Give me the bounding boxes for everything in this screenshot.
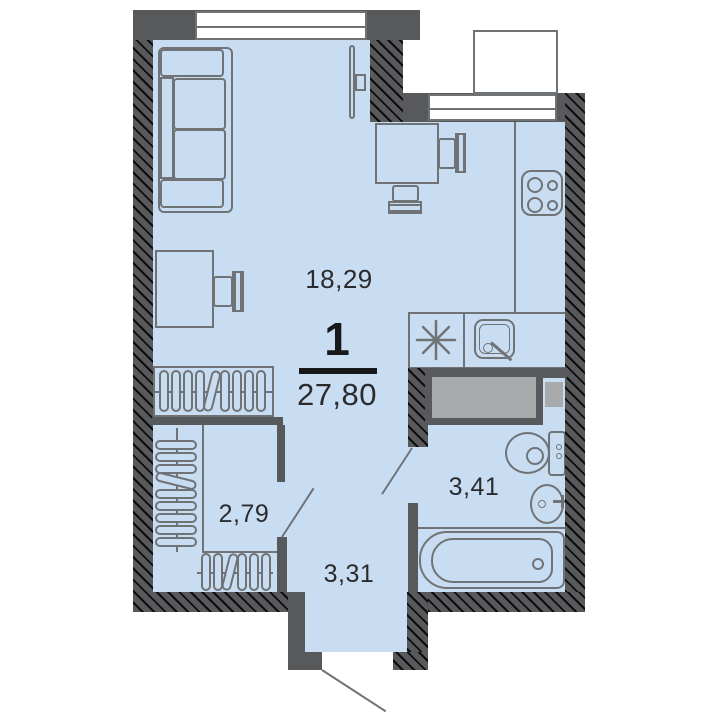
toilet-button xyxy=(556,444,562,450)
dining-chair-back xyxy=(455,133,466,173)
hanger-icon xyxy=(256,370,266,412)
hanger-icon xyxy=(171,370,181,412)
closet-line-vertical xyxy=(202,425,204,552)
wall-left xyxy=(133,10,153,612)
sofa-armrest-top xyxy=(160,49,224,77)
hanger-icon xyxy=(155,501,197,511)
duct-shaft-inner xyxy=(432,377,536,418)
hanger-icon xyxy=(261,553,271,591)
fridge-star-icon xyxy=(415,319,457,361)
wall-bottom-left xyxy=(133,592,305,612)
hanger-icon xyxy=(155,452,197,462)
wardrobe-wall xyxy=(152,417,283,425)
toilet-bowl-inner xyxy=(526,447,544,465)
hanger-icon xyxy=(201,553,211,591)
closet-area-label: 2,79 xyxy=(194,500,294,529)
desk xyxy=(155,250,214,328)
sofa-cushion xyxy=(173,78,226,130)
living-room-window xyxy=(195,11,367,40)
wall-right xyxy=(565,93,585,612)
hanger-icon xyxy=(155,525,197,535)
stove-burner xyxy=(527,197,543,213)
hanger-icon xyxy=(244,370,254,412)
kitchen-window xyxy=(428,94,557,121)
rooms-count: 1 xyxy=(287,312,387,366)
hanger-icon xyxy=(249,553,259,591)
bathroom-wall-left xyxy=(408,503,418,592)
vestibule-wall-right-foot xyxy=(393,652,428,670)
hanger-icon xyxy=(232,370,242,412)
vestibule-wall-left-foot xyxy=(288,652,322,670)
total-area-label: 27,80 xyxy=(277,377,397,413)
tv-mount xyxy=(355,74,366,91)
bath-partition-line xyxy=(418,527,567,529)
hanger-icon xyxy=(237,553,247,591)
stove-burner xyxy=(547,180,558,191)
window-mullion xyxy=(429,108,556,110)
toilet-button xyxy=(556,453,562,459)
wall-bottom-right xyxy=(408,592,585,612)
dining-chair-seat xyxy=(438,138,456,169)
balcony-box xyxy=(473,30,558,94)
dining-table xyxy=(375,123,439,184)
stove-burner xyxy=(527,177,543,193)
window-mullion xyxy=(196,26,366,28)
hanger-icon xyxy=(220,370,230,412)
dining-chair-back xyxy=(388,201,422,214)
stove-burner xyxy=(547,200,558,211)
sofa-back xyxy=(160,77,174,179)
sofa-cushion xyxy=(173,129,226,180)
bathroom-area-label: 3,41 xyxy=(424,473,524,502)
entry-door-swing xyxy=(321,669,386,712)
kitchen-divider-line xyxy=(514,122,516,313)
hanger-icon xyxy=(155,489,197,499)
closet-wall-top xyxy=(277,425,285,482)
hallway-area-label: 3,31 xyxy=(299,560,399,589)
dining-chair-seat xyxy=(392,185,419,202)
hanger-icon xyxy=(155,440,197,450)
closet-wall-bottom xyxy=(277,537,287,592)
hanger-icon xyxy=(155,537,197,547)
area-divider xyxy=(299,368,377,374)
washbasin-icon xyxy=(530,484,564,524)
hanger-icon xyxy=(155,513,197,523)
floor-plan: 18,29 1 27,80 2,79 3,31 3,41 xyxy=(0,0,720,720)
desk-chair-back xyxy=(232,271,244,312)
vestibule-floor xyxy=(305,592,407,652)
washbasin-faucet-knob xyxy=(561,495,564,508)
bathtub-drain xyxy=(532,558,544,570)
sofa-armrest-bottom xyxy=(160,179,224,208)
pier-wall xyxy=(370,40,403,122)
vent-box xyxy=(545,382,563,407)
hanger-icon xyxy=(183,370,193,412)
hanger-icon xyxy=(159,370,169,412)
living-area-label: 18,29 xyxy=(279,264,399,295)
desk-chair-seat xyxy=(213,276,233,307)
washbasin-drain xyxy=(538,500,546,508)
